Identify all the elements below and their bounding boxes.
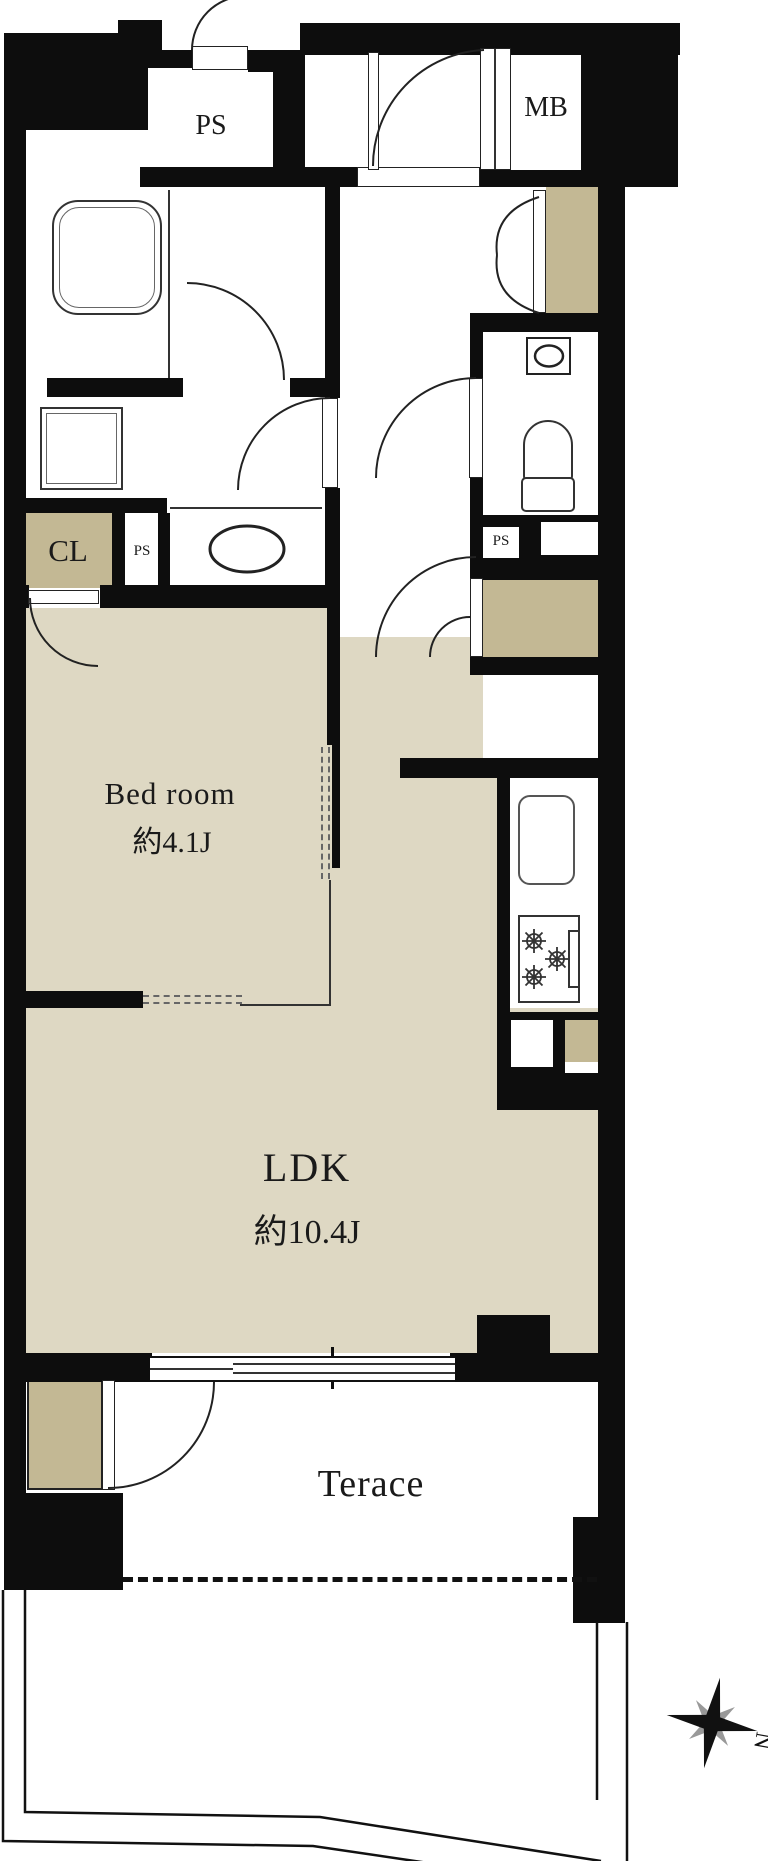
- sliding-window-line: [233, 1363, 455, 1365]
- wall: [112, 513, 125, 588]
- wall: [118, 20, 162, 50]
- door-swing-arc: [108, 1382, 214, 1488]
- wall: [4, 1353, 152, 1382]
- wall: [325, 185, 340, 398]
- ldk-name: LDK: [263, 1144, 351, 1191]
- terrace-name: Terace: [318, 1462, 425, 1506]
- hall-door-leaf: [368, 52, 379, 170]
- kitchen-side-niche: [565, 1062, 598, 1073]
- closet-door-leaf: [28, 590, 99, 604]
- wall: [497, 758, 510, 1012]
- door-swing-arc: [187, 283, 284, 380]
- bathtub-inner: [59, 207, 155, 308]
- utility-niche: [541, 522, 598, 555]
- partition-dashed-line: [321, 747, 330, 879]
- washing-machine-pan: [40, 407, 123, 490]
- wall: [290, 378, 325, 397]
- sliding-window: [233, 1356, 455, 1382]
- wall: [332, 745, 340, 868]
- wall: [325, 488, 340, 585]
- toilet-tank: [521, 477, 575, 512]
- ldk-door-leaf: [470, 578, 483, 657]
- door-swing-arc: [373, 50, 484, 166]
- pipe-space-washroom-label: PS: [134, 543, 151, 560]
- door-swing-arc: [238, 398, 330, 490]
- partition-thin-line: [329, 880, 331, 1006]
- wall: [470, 478, 483, 520]
- terrace-storage-door-leaf: [102, 1380, 115, 1490]
- wall: [470, 313, 483, 378]
- ldk-floor: [340, 758, 497, 1012]
- wall: [470, 313, 601, 332]
- wall: [450, 1353, 625, 1382]
- pipe-space-top-label: PS: [195, 110, 226, 142]
- wall: [327, 585, 340, 745]
- toilet-door-leaf: [469, 378, 483, 478]
- bathtub: [52, 200, 162, 315]
- refrigerator-space: [511, 1020, 553, 1067]
- wall: [470, 657, 598, 675]
- partition-dashed-line: [143, 995, 242, 1004]
- floor-plan: N PS MB CL PS PS Bed room 約4.1J LDK 約10.…: [0, 0, 768, 1861]
- wall: [148, 50, 192, 68]
- entrance-door-line: [494, 49, 496, 169]
- washroom-door-leaf: [322, 398, 338, 488]
- shoe-closet-back: [546, 187, 598, 313]
- shoe-closet-bifold-panel: [533, 190, 546, 313]
- bathroom-divider-line: [168, 190, 170, 378]
- closet-label: CL: [48, 533, 88, 569]
- door-swing-arc: [376, 378, 476, 478]
- wall: [598, 1380, 625, 1517]
- wall: [25, 991, 143, 1008]
- wall: [598, 187, 625, 1380]
- terrace-boundary-dashed: [123, 1577, 597, 1582]
- wall: [477, 1315, 550, 1353]
- kitchen-side-storage: [565, 1020, 598, 1062]
- ps-door-leaf: [192, 46, 248, 70]
- door-swing-arc: [192, 0, 246, 50]
- terrace-storage: [27, 1380, 103, 1490]
- toilet-hand-basin-box: [526, 337, 571, 375]
- ldk-area: 約10.4J: [254, 1204, 361, 1253]
- ldk-floor: [340, 637, 483, 758]
- bedroom-area: 約4.1J: [132, 817, 211, 861]
- stove-handle: [568, 930, 580, 988]
- washing-machine-pan-inner: [46, 413, 117, 484]
- north-label: N: [748, 1730, 768, 1752]
- meter-box-label: MB: [524, 92, 568, 124]
- bedroom-name: Bed room: [104, 776, 235, 812]
- wall: [480, 170, 625, 187]
- wall: [573, 1517, 625, 1623]
- kitchen-sink: [518, 795, 575, 885]
- wall: [140, 167, 357, 187]
- partition-thin-line: [240, 1004, 331, 1006]
- ldk-floor: [330, 868, 340, 1008]
- window-line: [150, 1368, 233, 1370]
- balcony-railing: [3, 1590, 632, 1861]
- wall: [47, 378, 183, 397]
- wall: [581, 47, 678, 187]
- compass-rose-icon: N: [659, 1670, 768, 1777]
- wall: [4, 1493, 123, 1590]
- sliding-window-line: [233, 1372, 455, 1374]
- vanity-counter-line: [170, 507, 322, 509]
- entry-step: [357, 167, 480, 187]
- hall-closet: [483, 572, 598, 657]
- pipe-space-toilet-label: PS: [493, 533, 510, 550]
- toilet-bowl: [523, 420, 573, 484]
- wall: [25, 498, 167, 513]
- wall: [100, 585, 340, 608]
